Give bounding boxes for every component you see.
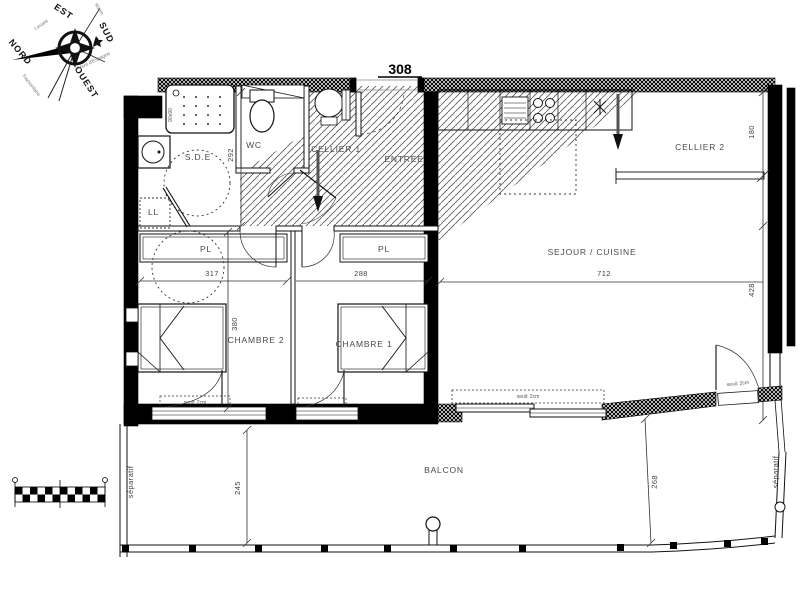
dim-428: 428: [747, 283, 756, 297]
dim-268: 268: [650, 475, 659, 489]
closets-hall: PL PL: [140, 231, 428, 303]
chambre2-label: CHAMBRE 2: [228, 335, 285, 345]
compass-label-west: OUEST: [73, 65, 101, 101]
entree-label: ENTREE: [384, 154, 423, 164]
railing-joint-icon: [775, 502, 785, 512]
shower-tray: [166, 85, 234, 133]
compass-wind-marin: Marin: [93, 3, 105, 17]
compass-star-icon: [93, 36, 103, 47]
nightstand-2: [126, 352, 138, 366]
chambre2-window: [152, 407, 266, 420]
dim-712: 712: [597, 269, 611, 278]
ll-label: LL: [148, 207, 159, 217]
bedroom-windows: seuil: 2cm: [152, 396, 358, 420]
bed-chambre1: [338, 304, 428, 372]
dim-317: 317: [205, 269, 219, 278]
cellier2-shelf: [616, 172, 764, 179]
cellier2-label: CELLIER 2: [675, 142, 725, 152]
baie-seuil-label: seuil: 2cm: [517, 394, 540, 400]
dim-180: 180: [747, 125, 756, 139]
dim-245: 245: [233, 481, 242, 495]
sejour-door-threshold: [718, 391, 759, 406]
pl1-label: PL: [200, 244, 212, 254]
compass-label-east: EST: [52, 2, 75, 22]
toilet: [250, 100, 274, 132]
front-door-leaf: [356, 92, 361, 136]
bed-chambre2: [138, 304, 226, 372]
compass-rose: EST SUD NORD OUEST Levant Vent d'Espagne…: [7, 2, 117, 101]
floor-plan-drawing: EST SUD NORD OUEST Levant Vent d'Espagne…: [0, 0, 800, 600]
chambre2-room: CHAMBRE 2: [126, 304, 284, 407]
balcony-post: [426, 517, 440, 531]
chambre1-label: CHAMBRE 1: [336, 339, 393, 349]
separatif-left-label: séparatif: [126, 465, 135, 498]
compass-wind-levant: Levant: [34, 18, 50, 32]
nightstand-1: [126, 308, 138, 322]
washbasin-tap-icon: [158, 151, 161, 154]
pl2-label: PL: [378, 244, 390, 254]
shower-door: [163, 188, 187, 227]
dim-380: 380: [230, 317, 239, 331]
compass-wind-tramontane: Tramontane: [20, 73, 41, 98]
dim-288: 288: [354, 269, 368, 278]
sde-label: S.D.E: [185, 152, 211, 162]
chambre1-window: [296, 407, 358, 420]
sejour-label: SEJOUR / CUISINE: [548, 247, 637, 257]
chambre1-room: CHAMBRE 1: [303, 304, 428, 407]
tiled-floor-hatch: [240, 86, 650, 240]
apartment-number: 308: [388, 61, 412, 77]
dim-292: 292: [226, 148, 235, 162]
floor-plan-page: EST SUD NORD OUEST Levant Vent d'Espagne…: [0, 0, 800, 600]
scale-bar: [13, 478, 108, 509]
sejour-door-seuil-label: seuil: 2cm: [726, 380, 749, 388]
separatif-right-label: séparatif: [771, 455, 780, 488]
water-heater: [315, 89, 343, 117]
shower-size-label: 90x90: [168, 108, 174, 122]
balcon-label: BALCON: [424, 465, 464, 475]
cellier2-room: CELLIER 2: [616, 142, 764, 184]
wc-label: WC: [246, 140, 262, 150]
compass-label-north: NORD: [7, 37, 34, 67]
chambre2-seuil-label: seuil: 2cm: [184, 400, 207, 406]
